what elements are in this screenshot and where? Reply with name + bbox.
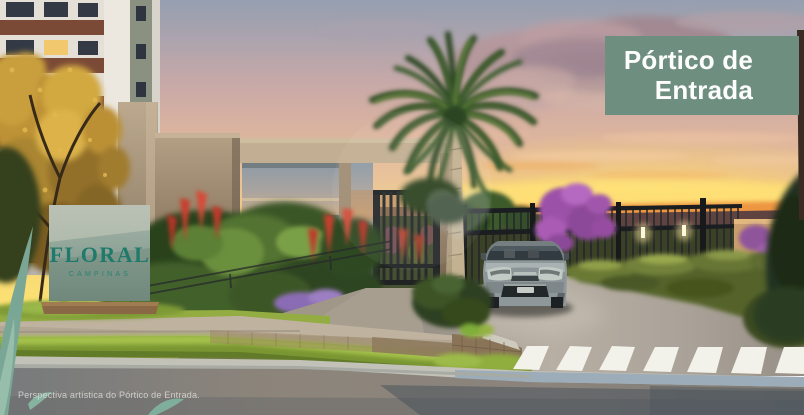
svg-text:CAMPINAS: CAMPINAS bbox=[69, 271, 131, 278]
svg-text:FLORAL: FLORAL bbox=[50, 242, 151, 267]
svg-text:Perspectiva artística do Pórti: Perspectiva artística do Pórtico de Entr… bbox=[18, 390, 200, 400]
